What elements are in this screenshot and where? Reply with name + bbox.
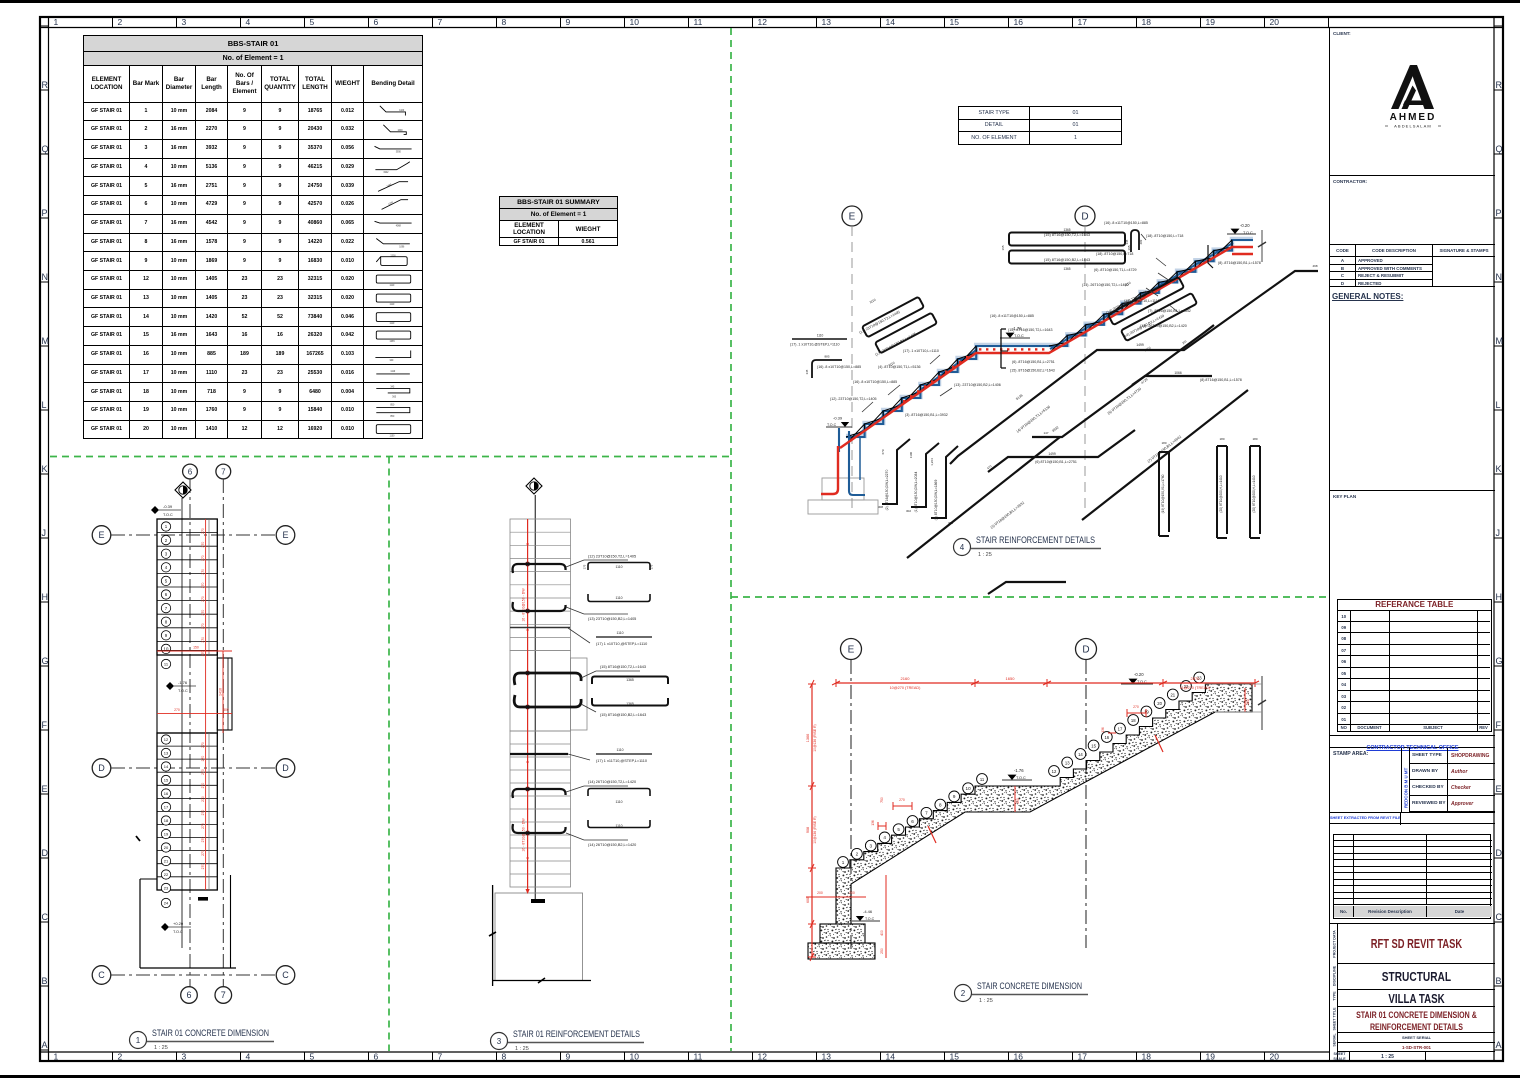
svg-text:16 - 8T10@150 - DW: 16 - 8T10@150 - DW — [522, 818, 526, 852]
svg-text:(16) .8 x10T10@150,L=885: (16) .8 x10T10@150,L=885 — [817, 365, 861, 369]
svg-text:1365: 1365 — [1063, 267, 1070, 271]
svg-text:(17) 1 x11T10,@STEP,L=1110: (17) 1 x11T10,@STEP,L=1110 — [596, 759, 647, 763]
svg-text:12: 12 — [1052, 769, 1057, 774]
svg-text:(17) 1 x10T10,@STEP,L=1110: (17) 1 x10T10,@STEP,L=1110 — [596, 642, 647, 646]
svg-text:270: 270 — [201, 837, 205, 843]
svg-text:17: 17 — [164, 805, 169, 810]
svg-text:270: 270 — [899, 798, 905, 802]
svg-text:200: 200 — [849, 891, 855, 895]
svg-text:D: D — [1082, 645, 1089, 656]
svg-text:(4) .8T10@150,T1,L=5136: (4) .8T10@150,T1,L=5136 — [878, 365, 921, 369]
svg-text:(18) .8T10@150,L=718: (18) .8T10@150,L=718 — [1096, 252, 1133, 256]
svg-text:(17) .1 x10T10,L=1110: (17) .1 x10T10,L=1110 — [903, 349, 939, 353]
svg-text:1366: 1366 — [806, 734, 810, 742]
svg-text:1365: 1365 — [626, 678, 634, 682]
svg-text:270: 270 — [201, 756, 205, 762]
svg-text:1365: 1365 — [626, 702, 634, 706]
svg-text:270: 270 — [201, 542, 205, 548]
svg-text:23: 23 — [164, 886, 169, 891]
svg-text:270: 270 — [174, 708, 180, 712]
svg-text:136: 136 — [1101, 727, 1105, 733]
svg-text:6: 6 — [911, 819, 914, 824]
svg-text:270: 270 — [201, 569, 205, 575]
svg-text:498: 498 — [1312, 264, 1317, 268]
svg-text:T.O.C: T.O.C — [1016, 776, 1026, 780]
svg-text:19: 19 — [1144, 709, 1149, 714]
svg-text:15: 15 — [1091, 743, 1096, 748]
svg-text:E: E — [282, 530, 288, 540]
svg-text:11: 11 — [980, 777, 985, 782]
svg-text:4: 4 — [883, 835, 886, 840]
svg-text:(13) .23T10@150,B2,L=1406: (13) .23T10@150,B2,L=1406 — [954, 383, 1001, 387]
svg-text:20: 20 — [164, 845, 169, 850]
svg-text:608: 608 — [806, 897, 810, 903]
svg-text:2: 2 — [856, 852, 859, 857]
svg-text:1 : 25: 1 : 25 — [515, 1046, 529, 1052]
svg-text:2160: 2160 — [901, 676, 911, 681]
svg-text:1499: 1499 — [1136, 343, 1144, 347]
svg-text:(7) .8T16@150,B1,L=4542: (7) .8T16@150,B1,L=4542 — [1148, 309, 1191, 313]
svg-text:3932: 3932 — [1051, 425, 1059, 433]
svg-text:165: 165 — [1001, 245, 1005, 250]
svg-text:(19) 8T10@150,V1,L=1760: (19) 8T10@150,V1,L=1760 — [1161, 474, 1165, 513]
svg-text:270: 270 — [201, 769, 205, 775]
svg-text:(6) .8T10@150,T1,L=4729: (6) .8T10@150,T1,L=4729 — [1094, 268, 1137, 272]
svg-text:270: 270 — [201, 650, 205, 656]
svg-text:(14) .26T10@150,B2,L=1420: (14) .26T10@150,B2,L=1420 — [1140, 324, 1187, 328]
svg-text:283: 283 — [1139, 239, 1143, 244]
svg-text:12: 12 — [164, 737, 169, 742]
svg-text:T.O.C: T.O.C — [1243, 231, 1253, 235]
svg-text:180: 180 — [1161, 441, 1166, 445]
svg-text:1499: 1499 — [1048, 452, 1056, 456]
svg-text:10@136 (RISE R): 10@136 (RISE R) — [813, 724, 817, 751]
svg-text:1365: 1365 — [1063, 228, 1070, 232]
svg-text:T.O.C: T.O.C — [865, 917, 875, 921]
svg-text:(14) 26T10@150,T2,L=1420: (14) 26T10@150,T2,L=1420 — [588, 780, 636, 784]
svg-text:E: E — [848, 645, 855, 656]
svg-text:270: 270 — [201, 823, 205, 829]
svg-text:C: C — [98, 970, 105, 980]
svg-text:(7) 9T16@150,B1,L=4542: (7) 9T16@150,B1,L=4542 — [1147, 435, 1182, 464]
svg-text:T.O.C: T.O.C — [163, 513, 173, 517]
svg-text:11@270 (TREAD): 11@270 (TREAD) — [1180, 686, 1211, 690]
svg-text:STAIR REINFORCEMENT DETAILS: STAIR REINFORCEMENT DETAILS — [976, 535, 1095, 546]
svg-text:1: 1 — [842, 860, 845, 865]
svg-text:(6) 8T10@150,B1,L=2751: (6) 8T10@150,B1,L=2751 — [1035, 460, 1077, 464]
svg-text:(16) .8 x10T10@150,L=885: (16) .8 x10T10@150,L=885 — [853, 380, 897, 384]
svg-text:1110: 1110 — [817, 334, 824, 338]
svg-text:147: 147 — [1043, 431, 1048, 435]
svg-text:18: 18 — [1131, 718, 1136, 723]
svg-text:(15) .8T16@150,T2,L=1643: (15) .8T16@150,T2,L=1643 — [1008, 328, 1053, 332]
svg-text:175: 175 — [583, 564, 587, 569]
svg-text:STAIR 01 CONCRETE DIMENSION: STAIR 01 CONCRETE DIMENSION — [152, 1028, 269, 1039]
svg-text:7: 7 — [221, 990, 226, 1000]
svg-text:(15) 8T16@150,B2,L=1643: (15) 8T16@150,B2,L=1643 — [1044, 258, 1090, 262]
svg-text:270: 270 — [1133, 705, 1139, 709]
svg-text:1,264: 1,264 — [930, 458, 934, 466]
svg-text:270: 270 — [201, 637, 205, 643]
svg-text:136: 136 — [871, 820, 875, 826]
svg-text:302: 302 — [906, 509, 911, 513]
svg-text:1110: 1110 — [615, 800, 622, 804]
svg-text:8: 8 — [939, 802, 942, 807]
svg-text:17: 17 — [1118, 726, 1123, 731]
svg-text:STAIR CONCRETE DIMENSION: STAIR CONCRETE DIMENSION — [977, 981, 1082, 992]
svg-text:16: 16 — [164, 791, 169, 796]
svg-text:16 - 8T10@150 - DW: 16 - 8T10@150 - DW — [522, 588, 526, 622]
svg-text:D: D — [282, 763, 289, 773]
svg-text:250: 250 — [1016, 798, 1020, 804]
svg-text:200: 200 — [817, 891, 823, 895]
svg-text:10@136 (RISE R): 10@136 (RISE R) — [813, 816, 817, 843]
svg-text:-0.39: -0.39 — [163, 504, 173, 509]
svg-text:13: 13 — [164, 751, 169, 756]
svg-text:(12) .23T10@150,T2,L=1405: (12) .23T10@150,T2,L=1405 — [830, 397, 877, 401]
svg-text:345: 345 — [805, 369, 809, 374]
svg-text:10: 10 — [966, 786, 972, 791]
svg-text:150: 150 — [193, 646, 199, 650]
svg-text:(13) 23T10@150,B2,L=1405: (13) 23T10@150,B2,L=1405 — [875, 332, 917, 357]
svg-text:C: C — [282, 970, 289, 980]
svg-text:250: 250 — [880, 948, 884, 954]
svg-text:180: 180 — [1252, 437, 1257, 441]
svg-text:10@270 (TREAD): 10@270 (TREAD) — [890, 686, 922, 690]
svg-text:(3) .8T16@150,B1,L=3932: (3) .8T16@150,B1,L=3932 — [905, 413, 948, 417]
svg-text:(15) 8T16@150,B2,L=1643: (15) 8T16@150,B2,L=1643 — [600, 713, 646, 717]
svg-text:(20) 8T10@200,H,L=1410: (20) 8T10@200,H,L=1410 — [1219, 475, 1223, 512]
svg-text:D: D — [1081, 212, 1088, 223]
svg-text:679: 679 — [881, 449, 885, 454]
svg-text:E: E — [98, 530, 104, 540]
svg-text:20: 20 — [1157, 701, 1162, 706]
svg-text:3: 3 — [870, 843, 873, 848]
svg-text:1 : 25: 1 : 25 — [978, 552, 992, 558]
svg-text:18: 18 — [164, 818, 169, 823]
svg-text:(2) 8T16@150,DW,L=2270: (2) 8T16@150,DW,L=2270 — [885, 470, 889, 511]
svg-text:1110: 1110 — [616, 631, 623, 635]
svg-text:1 : 25: 1 : 25 — [979, 998, 993, 1004]
svg-text:345: 345 — [1125, 239, 1129, 244]
svg-text:16: 16 — [1104, 735, 1109, 740]
svg-text:300: 300 — [223, 708, 229, 712]
svg-text:270: 270 — [201, 796, 205, 802]
svg-text:1: 1 — [136, 1036, 141, 1045]
svg-text:270: 270 — [201, 783, 205, 789]
svg-text:180: 180 — [1219, 437, 1224, 441]
svg-text:885: 885 — [824, 355, 829, 359]
svg-text:22: 22 — [164, 872, 169, 877]
svg-text:(16) .8 x11T10@150,L=885: (16) .8 x11T10@150,L=885 — [1104, 221, 1148, 225]
svg-text:270: 270 — [201, 610, 205, 616]
svg-text:(14) 26T10@150,B2,L=1420: (14) 26T10@150,B2,L=1420 — [588, 843, 636, 847]
svg-text:(16) .8 x11T10@150,L=885: (16) .8 x11T10@150,L=885 — [990, 314, 1034, 318]
svg-text:7: 7 — [925, 811, 928, 816]
svg-text:(14) .26T10@150,T2,L=1420: (14) .26T10@150,T2,L=1420 — [1082, 283, 1129, 287]
svg-text:T.O.C: T.O.C — [1014, 334, 1024, 338]
svg-text:(6) .8T16@150,B1,L=2751: (6) .8T16@150,B1,L=2751 — [1012, 360, 1055, 364]
svg-text:+0.20: +0.20 — [173, 921, 184, 926]
svg-text:1110: 1110 — [616, 748, 623, 752]
svg-text:-0.39: -0.39 — [833, 416, 843, 421]
svg-text:(1) 8T10@150,DW,L=2084: (1) 8T10@150,DW,L=2084 — [914, 472, 918, 513]
svg-text:1110: 1110 — [869, 298, 877, 305]
svg-text:(12) 23T10@150,T2,L=1405: (12) 23T10@150,T2,L=1405 — [588, 555, 636, 559]
svg-text:21: 21 — [1170, 692, 1175, 697]
svg-text:14: 14 — [164, 764, 169, 769]
svg-text:21: 21 — [164, 859, 169, 864]
svg-text:(17) .1 x11T10,L=1110: (17) .1 x11T10,L=1110 — [1124, 299, 1160, 303]
svg-text:(3) 9T16@150,B1,L=3932: (3) 9T16@150,B1,L=3932 — [990, 501, 1025, 530]
svg-text:6: 6 — [188, 467, 193, 476]
svg-text:1650: 1650 — [1006, 676, 1016, 681]
svg-text:(15) 8T16@150,T2,L=1643: (15) 8T16@150,T2,L=1643 — [600, 665, 646, 669]
svg-text:24: 24 — [164, 901, 169, 906]
svg-text:6: 6 — [186, 990, 191, 1000]
svg-text:5: 5 — [897, 827, 900, 832]
svg-text:1110: 1110 — [615, 565, 622, 569]
svg-text:270: 270 — [201, 596, 205, 602]
svg-text:270: 270 — [201, 742, 205, 748]
svg-text:7: 7 — [221, 467, 226, 476]
svg-text:13: 13 — [1065, 760, 1070, 765]
svg-text:(15) 8T16@150,T2,L=1643: (15) 8T16@150,T2,L=1643 — [1044, 233, 1090, 237]
svg-text:4: 4 — [960, 543, 965, 552]
svg-text:175: 175 — [650, 564, 654, 569]
svg-text:14: 14 — [1078, 752, 1083, 757]
svg-text:(20) 8T10@200,H,L=1410: (20) 8T10@200,H,L=1410 — [1252, 475, 1256, 512]
svg-text:270: 270 — [201, 528, 205, 534]
svg-text:270: 270 — [201, 582, 205, 588]
svg-text:19: 19 — [164, 832, 169, 837]
svg-text:308: 308 — [878, 505, 883, 509]
svg-text:-1.76: -1.76 — [1014, 768, 1024, 773]
svg-text:270: 270 — [201, 864, 205, 870]
svg-text:400: 400 — [880, 930, 884, 936]
svg-text:250: 250 — [1246, 699, 1250, 705]
svg-text:9: 9 — [953, 794, 956, 799]
svg-text:270: 270 — [201, 810, 205, 816]
svg-text:270: 270 — [201, 623, 205, 629]
svg-text:(17) .1 x10T10,@STEP,L=1110: (17) .1 x10T10,@STEP,L=1110 — [790, 343, 840, 347]
svg-text:STAIR 01 REINFORCEMENT DETAILS: STAIR 01 REINFORCEMENT DETAILS — [513, 1029, 640, 1040]
svg-text:(15) .8T16@150,B2,L=1643: (15) .8T16@150,B2,L=1643 — [1010, 369, 1055, 373]
svg-text:-0.20: -0.20 — [1134, 672, 1144, 677]
svg-text:(9) 8T10@150,DW,L=1869: (9) 8T10@150,DW,L=1869 — [934, 480, 938, 521]
svg-text:E: E — [849, 212, 856, 223]
svg-text:-1.76: -1.76 — [178, 680, 188, 685]
svg-text:3: 3 — [497, 1037, 502, 1046]
svg-text:T.O.C: T.O.C — [827, 423, 837, 427]
svg-text:(18) .8T10@150,L=718: (18) .8T10@150,L=718 — [1146, 234, 1183, 238]
svg-text:D: D — [98, 763, 105, 773]
svg-text:2870: 2870 — [1191, 676, 1201, 681]
svg-text:270: 270 — [201, 555, 205, 561]
svg-text:2: 2 — [961, 989, 966, 998]
svg-text:(8) 8T16@150,B1,L=1578: (8) 8T16@150,B1,L=1578 — [1200, 378, 1242, 382]
svg-text:T.O.C: T.O.C — [178, 689, 188, 693]
svg-text:270: 270 — [201, 850, 205, 856]
svg-text:750: 750 — [880, 797, 884, 803]
svg-text:1110: 1110 — [615, 596, 622, 600]
svg-text:(13) 23T10@150,B2,L=1405: (13) 23T10@150,B2,L=1405 — [588, 617, 636, 621]
svg-text:1110: 1110 — [615, 824, 622, 828]
svg-text:T.O.C: T.O.C — [173, 930, 183, 934]
svg-text:(8) .8T16@150,B1,L=1578: (8) .8T16@150,B1,L=1578 — [1218, 261, 1261, 265]
svg-text:1410: 1410 — [218, 688, 222, 696]
svg-text:15: 15 — [164, 778, 169, 783]
svg-text:5136: 5136 — [1015, 393, 1023, 401]
svg-text:1066: 1066 — [1174, 371, 1182, 375]
svg-text:908: 908 — [806, 827, 810, 833]
svg-text:1100: 1100 — [909, 451, 913, 458]
svg-text:-0.20: -0.20 — [1240, 223, 1250, 228]
svg-text:-4.46: -4.46 — [863, 909, 873, 914]
svg-text:1 : 25: 1 : 25 — [154, 1045, 168, 1051]
